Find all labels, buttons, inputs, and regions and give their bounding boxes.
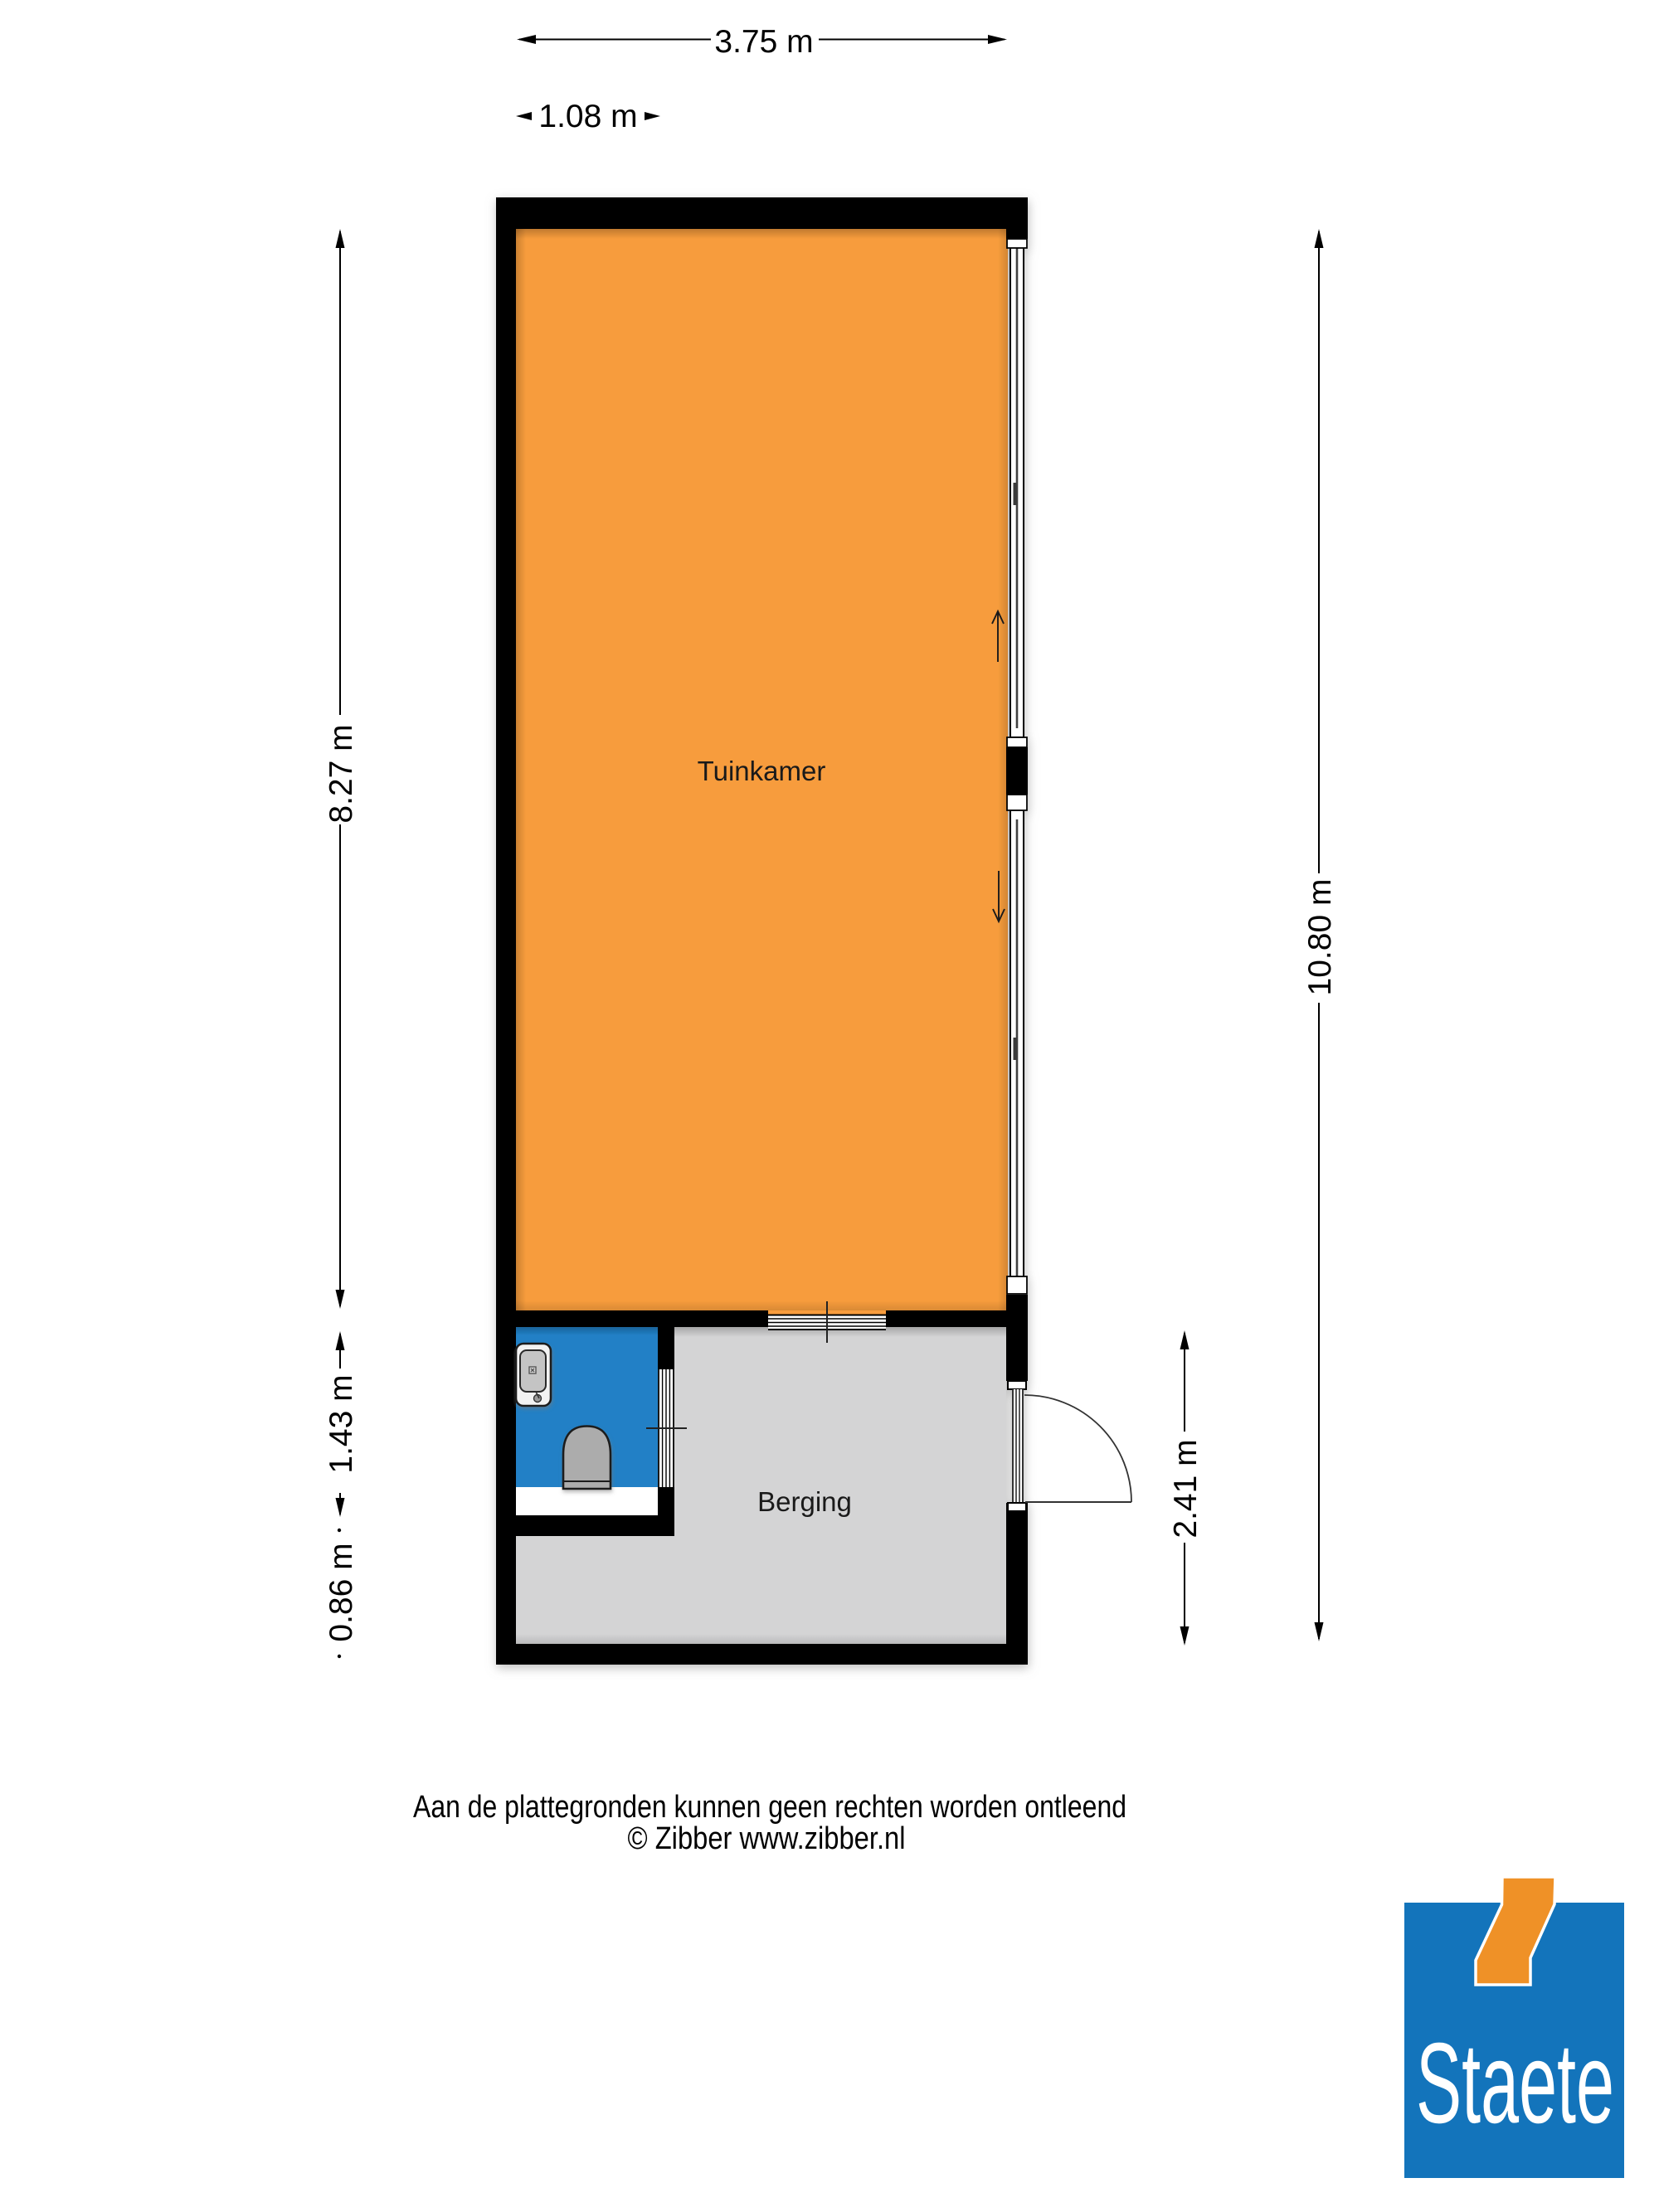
svg-text:3.75 m: 3.75 m — [714, 24, 813, 60]
svg-text:1.08 m: 1.08 m — [538, 99, 637, 134]
svg-text:10.80 m: 10.80 m — [1302, 879, 1338, 996]
svg-text:Berging: Berging — [757, 1486, 852, 1517]
svg-text:Aan de plattegronden kunnen ge: Aan de plattegronden kunnen geen rechten… — [413, 1790, 1126, 1825]
svg-text:© Zibber www.zibber.nl: © Zibber www.zibber.nl — [628, 1821, 906, 1856]
svg-text:2.41 m: 2.41 m — [1168, 1439, 1204, 1538]
svg-text:Staete: Staete — [1416, 2020, 1614, 2147]
svg-text:8.27 m: 8.27 m — [324, 724, 359, 823]
svg-text:1.43 m: 1.43 m — [324, 1374, 359, 1473]
svg-text:Tuinkamer: Tuinkamer — [698, 756, 826, 786]
svg-text:0.86 m: 0.86 m — [324, 1543, 359, 1641]
